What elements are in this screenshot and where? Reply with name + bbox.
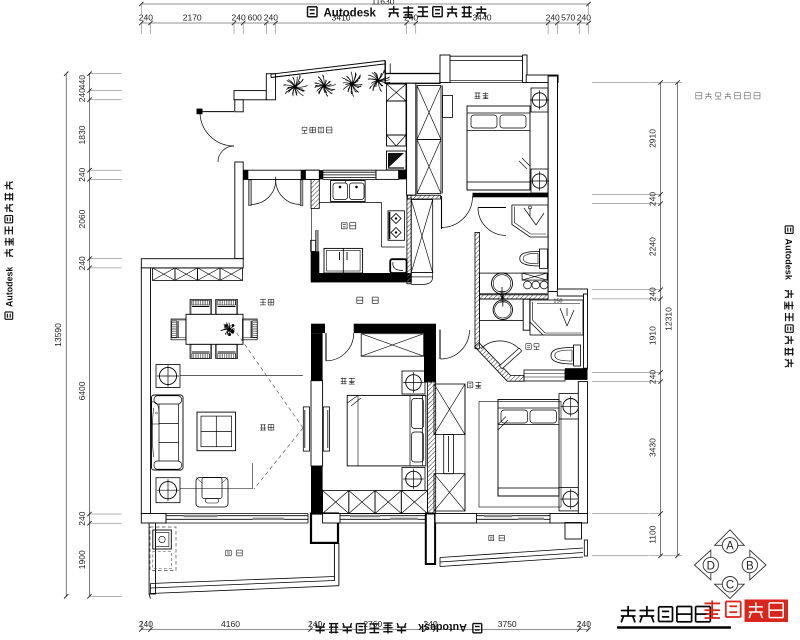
svg-text:240: 240 — [648, 287, 658, 301]
svg-text:440: 440 — [77, 75, 87, 89]
svg-text:1900: 1900 — [77, 550, 87, 569]
svg-text:240: 240 — [77, 167, 87, 181]
svg-text:4160: 4160 — [221, 619, 240, 629]
svg-text:240: 240 — [264, 13, 278, 23]
svg-text:Autodesk: Autodesk — [324, 8, 377, 20]
svg-text:240: 240 — [577, 13, 591, 23]
svg-text:A: A — [726, 541, 734, 553]
svg-text:240: 240 — [77, 88, 87, 102]
svg-text:Autodesk: Autodesk — [418, 621, 467, 633]
svg-text:13590: 13590 — [53, 323, 63, 347]
svg-text:12310: 12310 — [664, 307, 674, 331]
svg-text:2060: 2060 — [77, 209, 87, 228]
svg-text:240: 240 — [648, 192, 658, 206]
svg-text:3430: 3430 — [648, 438, 658, 457]
svg-text:150: 150 — [553, 299, 562, 305]
svg-text:240: 240 — [77, 511, 87, 525]
svg-text:D: D — [707, 560, 715, 572]
svg-text:240: 240 — [577, 619, 591, 629]
svg-text:11630: 11630 — [371, 0, 394, 7]
svg-text:Autodesk: Autodesk — [783, 239, 793, 281]
svg-text:240: 240 — [648, 370, 658, 384]
svg-text:2170: 2170 — [183, 13, 202, 23]
svg-text:C: C — [726, 580, 734, 592]
svg-text:Autodesk: Autodesk — [4, 267, 14, 307]
svg-text:2240: 2240 — [647, 237, 657, 256]
svg-text:1830: 1830 — [77, 125, 87, 144]
svg-text:240: 240 — [139, 13, 153, 23]
svg-text:3750: 3750 — [498, 619, 517, 629]
svg-text:2910: 2910 — [647, 129, 657, 148]
svg-text:240: 240 — [77, 256, 87, 270]
svg-text:240: 240 — [139, 619, 153, 629]
svg-text:B: B — [746, 560, 754, 572]
svg-text:240: 240 — [546, 13, 560, 23]
svg-text:570: 570 — [561, 13, 575, 23]
svg-text:600: 600 — [248, 13, 262, 23]
svg-text:6400: 6400 — [77, 381, 87, 400]
svg-text:240: 240 — [232, 13, 246, 23]
svg-text:3440: 3440 — [473, 13, 492, 23]
svg-text:1910: 1910 — [647, 326, 657, 345]
svg-text:1100: 1100 — [647, 525, 657, 544]
